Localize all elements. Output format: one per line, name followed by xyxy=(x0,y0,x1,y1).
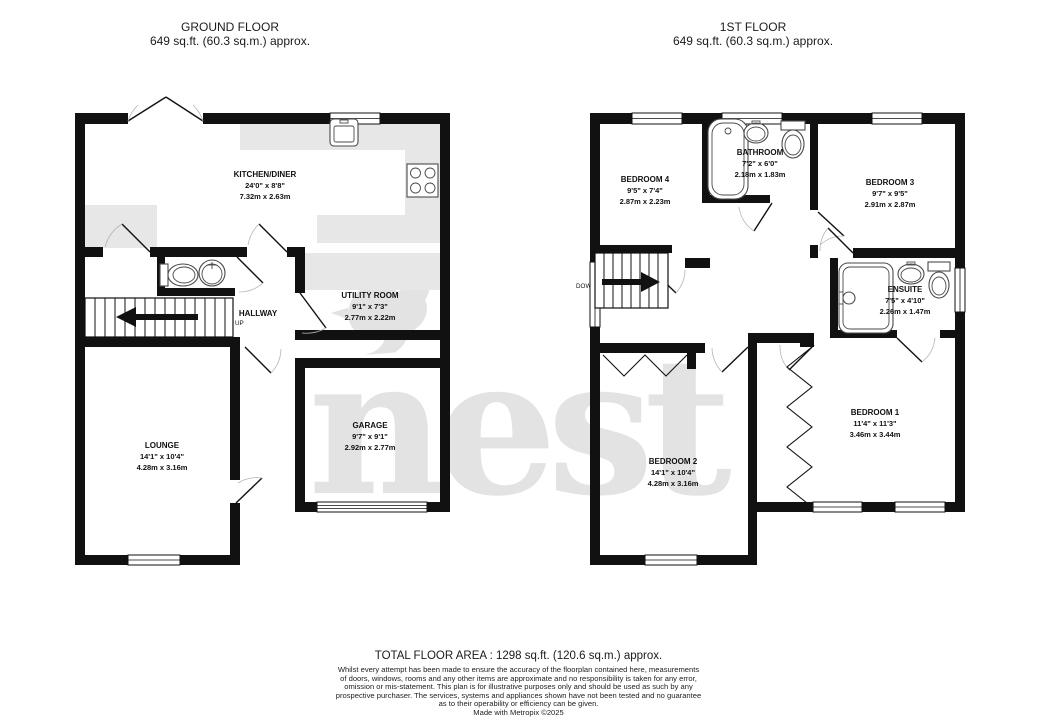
svg-text:KITCHEN/DINER: KITCHEN/DINER xyxy=(234,170,297,179)
room-label-garage: GARAGE 9'7" x 9'1" 2.92m x 2.77m xyxy=(345,421,396,452)
svg-text:7.32m x 2.63m: 7.32m x 2.63m xyxy=(240,192,291,201)
svg-text:UTILITY ROOM: UTILITY ROOM xyxy=(341,291,399,300)
room-label-utility: UTILITY ROOM 9'1" x 7'3" 2.77m x 2.22m xyxy=(341,291,399,322)
svg-text:7'5" x 4'10": 7'5" x 4'10" xyxy=(885,296,925,305)
svg-text:2.91m x 2.87m: 2.91m x 2.87m xyxy=(865,200,916,209)
total-floor-area: TOTAL FLOOR AREA : 1298 sq.ft. (120.6 sq… xyxy=(0,650,1037,662)
first-floor-title: 1ST FLOOR xyxy=(628,20,878,34)
ground-floor-area: 649 sq.ft. (60.3 sq.m.) approx. xyxy=(105,34,355,48)
first-floor-area: 649 sq.ft. (60.3 sq.m.) approx. xyxy=(628,34,878,48)
disclaimer: Whilst every attempt has been made to en… xyxy=(0,666,1037,718)
svg-text:3.46m x 3.44m: 3.46m x 3.44m xyxy=(850,430,901,439)
svg-text:14'1" x 10'4": 14'1" x 10'4" xyxy=(651,468,695,477)
kitchen-sink-icon xyxy=(330,119,358,146)
bathroom-toilet-icon xyxy=(781,121,805,158)
svg-text:4.28m x 3.16m: 4.28m x 3.16m xyxy=(648,479,699,488)
wardrobe-bedroom2 xyxy=(603,355,687,376)
ensuite-basin-icon xyxy=(898,262,924,284)
stairs-up xyxy=(85,298,233,337)
room-label-bedroom3: BEDROOM 3 9'7" x 9'5" 2.91m x 2.87m xyxy=(865,178,916,209)
svg-text:2.92m x 2.77m: 2.92m x 2.77m xyxy=(345,443,396,452)
svg-text:4.28m x 3.16m: 4.28m x 3.16m xyxy=(137,463,188,472)
metropix-credit: Made with Metropix ©2025 xyxy=(0,709,1037,718)
svg-text:BEDROOM 1: BEDROOM 1 xyxy=(851,408,900,417)
first-floor-plan: DOWN xyxy=(575,95,975,575)
svg-text:2.26m x 1.47m: 2.26m x 1.47m xyxy=(880,307,931,316)
svg-text:BEDROOM 2: BEDROOM 2 xyxy=(649,457,698,466)
ground-floor-title: GROUND FLOOR xyxy=(105,20,355,34)
room-label-lounge: LOUNGE 14'1" x 10'4" 4.28m x 3.16m xyxy=(137,441,188,472)
room-label-hallway: HALLWAY UP xyxy=(235,309,278,327)
svg-text:24'0" x 8'8": 24'0" x 8'8" xyxy=(245,181,285,190)
ground-floor-header: GROUND FLOOR 649 sq.ft. (60.3 sq.m.) app… xyxy=(105,20,355,48)
svg-text:9'1" x 7'3": 9'1" x 7'3" xyxy=(352,302,388,311)
svg-text:ENSUITE: ENSUITE xyxy=(888,285,923,294)
wc-basin-icon xyxy=(199,260,225,286)
svg-text:11'4" x 11'3": 11'4" x 11'3" xyxy=(853,419,897,428)
svg-text:2.18m x 1.83m: 2.18m x 1.83m xyxy=(735,170,786,179)
kitchen-counter xyxy=(78,124,440,290)
svg-text:7'2" x 6'0": 7'2" x 6'0" xyxy=(742,159,778,168)
svg-text:BATHROOM: BATHROOM xyxy=(737,148,784,157)
svg-text:HALLWAY: HALLWAY xyxy=(239,309,278,318)
svg-text:2.87m x 2.23m: 2.87m x 2.23m xyxy=(620,197,671,206)
svg-text:LOUNGE: LOUNGE xyxy=(145,441,180,450)
stairs-up-label: UP xyxy=(235,320,244,327)
svg-text:9'7" x 9'5": 9'7" x 9'5" xyxy=(872,189,908,198)
footer: TOTAL FLOOR AREA : 1298 sq.ft. (120.6 sq… xyxy=(0,650,1037,718)
svg-text:BEDROOM 4: BEDROOM 4 xyxy=(621,175,670,184)
room-label-bedroom4: BEDROOM 4 9'5" x 7'4" 2.87m x 2.23m xyxy=(620,175,671,206)
svg-text:2.77m x 2.22m: 2.77m x 2.22m xyxy=(345,313,396,322)
room-label-bedroom2: BEDROOM 2 14'1" x 10'4" 4.28m x 3.16m xyxy=(648,457,699,488)
svg-text:9'7" x 9'1": 9'7" x 9'1" xyxy=(352,432,388,441)
wc-toilet-icon xyxy=(160,264,198,286)
room-label-bathroom: BATHROOM 7'2" x 6'0" 2.18m x 1.83m xyxy=(735,148,786,179)
svg-text:14'1" x 10'4": 14'1" x 10'4" xyxy=(140,452,184,461)
svg-text:BEDROOM 3: BEDROOM 3 xyxy=(866,178,915,187)
hob-icon xyxy=(407,164,438,197)
room-label-ensuite: ENSUITE 7'5" x 4'10" 2.26m x 1.47m xyxy=(880,285,931,316)
ensuite-toilet-icon xyxy=(928,262,950,298)
first-floor-header: 1ST FLOOR 649 sq.ft. (60.3 sq.m.) approx… xyxy=(628,20,878,48)
ground-floor-plan: KITCHEN/DINER 24'0" x 8'8" 7.32m x 2.63m… xyxy=(60,95,460,575)
room-label-kitchen: KITCHEN/DINER 24'0" x 8'8" 7.32m x 2.63m xyxy=(234,170,297,201)
stairs-down xyxy=(595,253,668,308)
svg-text:9'5" x 7'4": 9'5" x 7'4" xyxy=(627,186,663,195)
wardrobe-bedroom1 xyxy=(787,347,812,507)
svg-text:GARAGE: GARAGE xyxy=(352,421,388,430)
room-label-bedroom1: BEDROOM 1 11'4" x 11'3" 3.46m x 3.44m xyxy=(850,408,901,439)
